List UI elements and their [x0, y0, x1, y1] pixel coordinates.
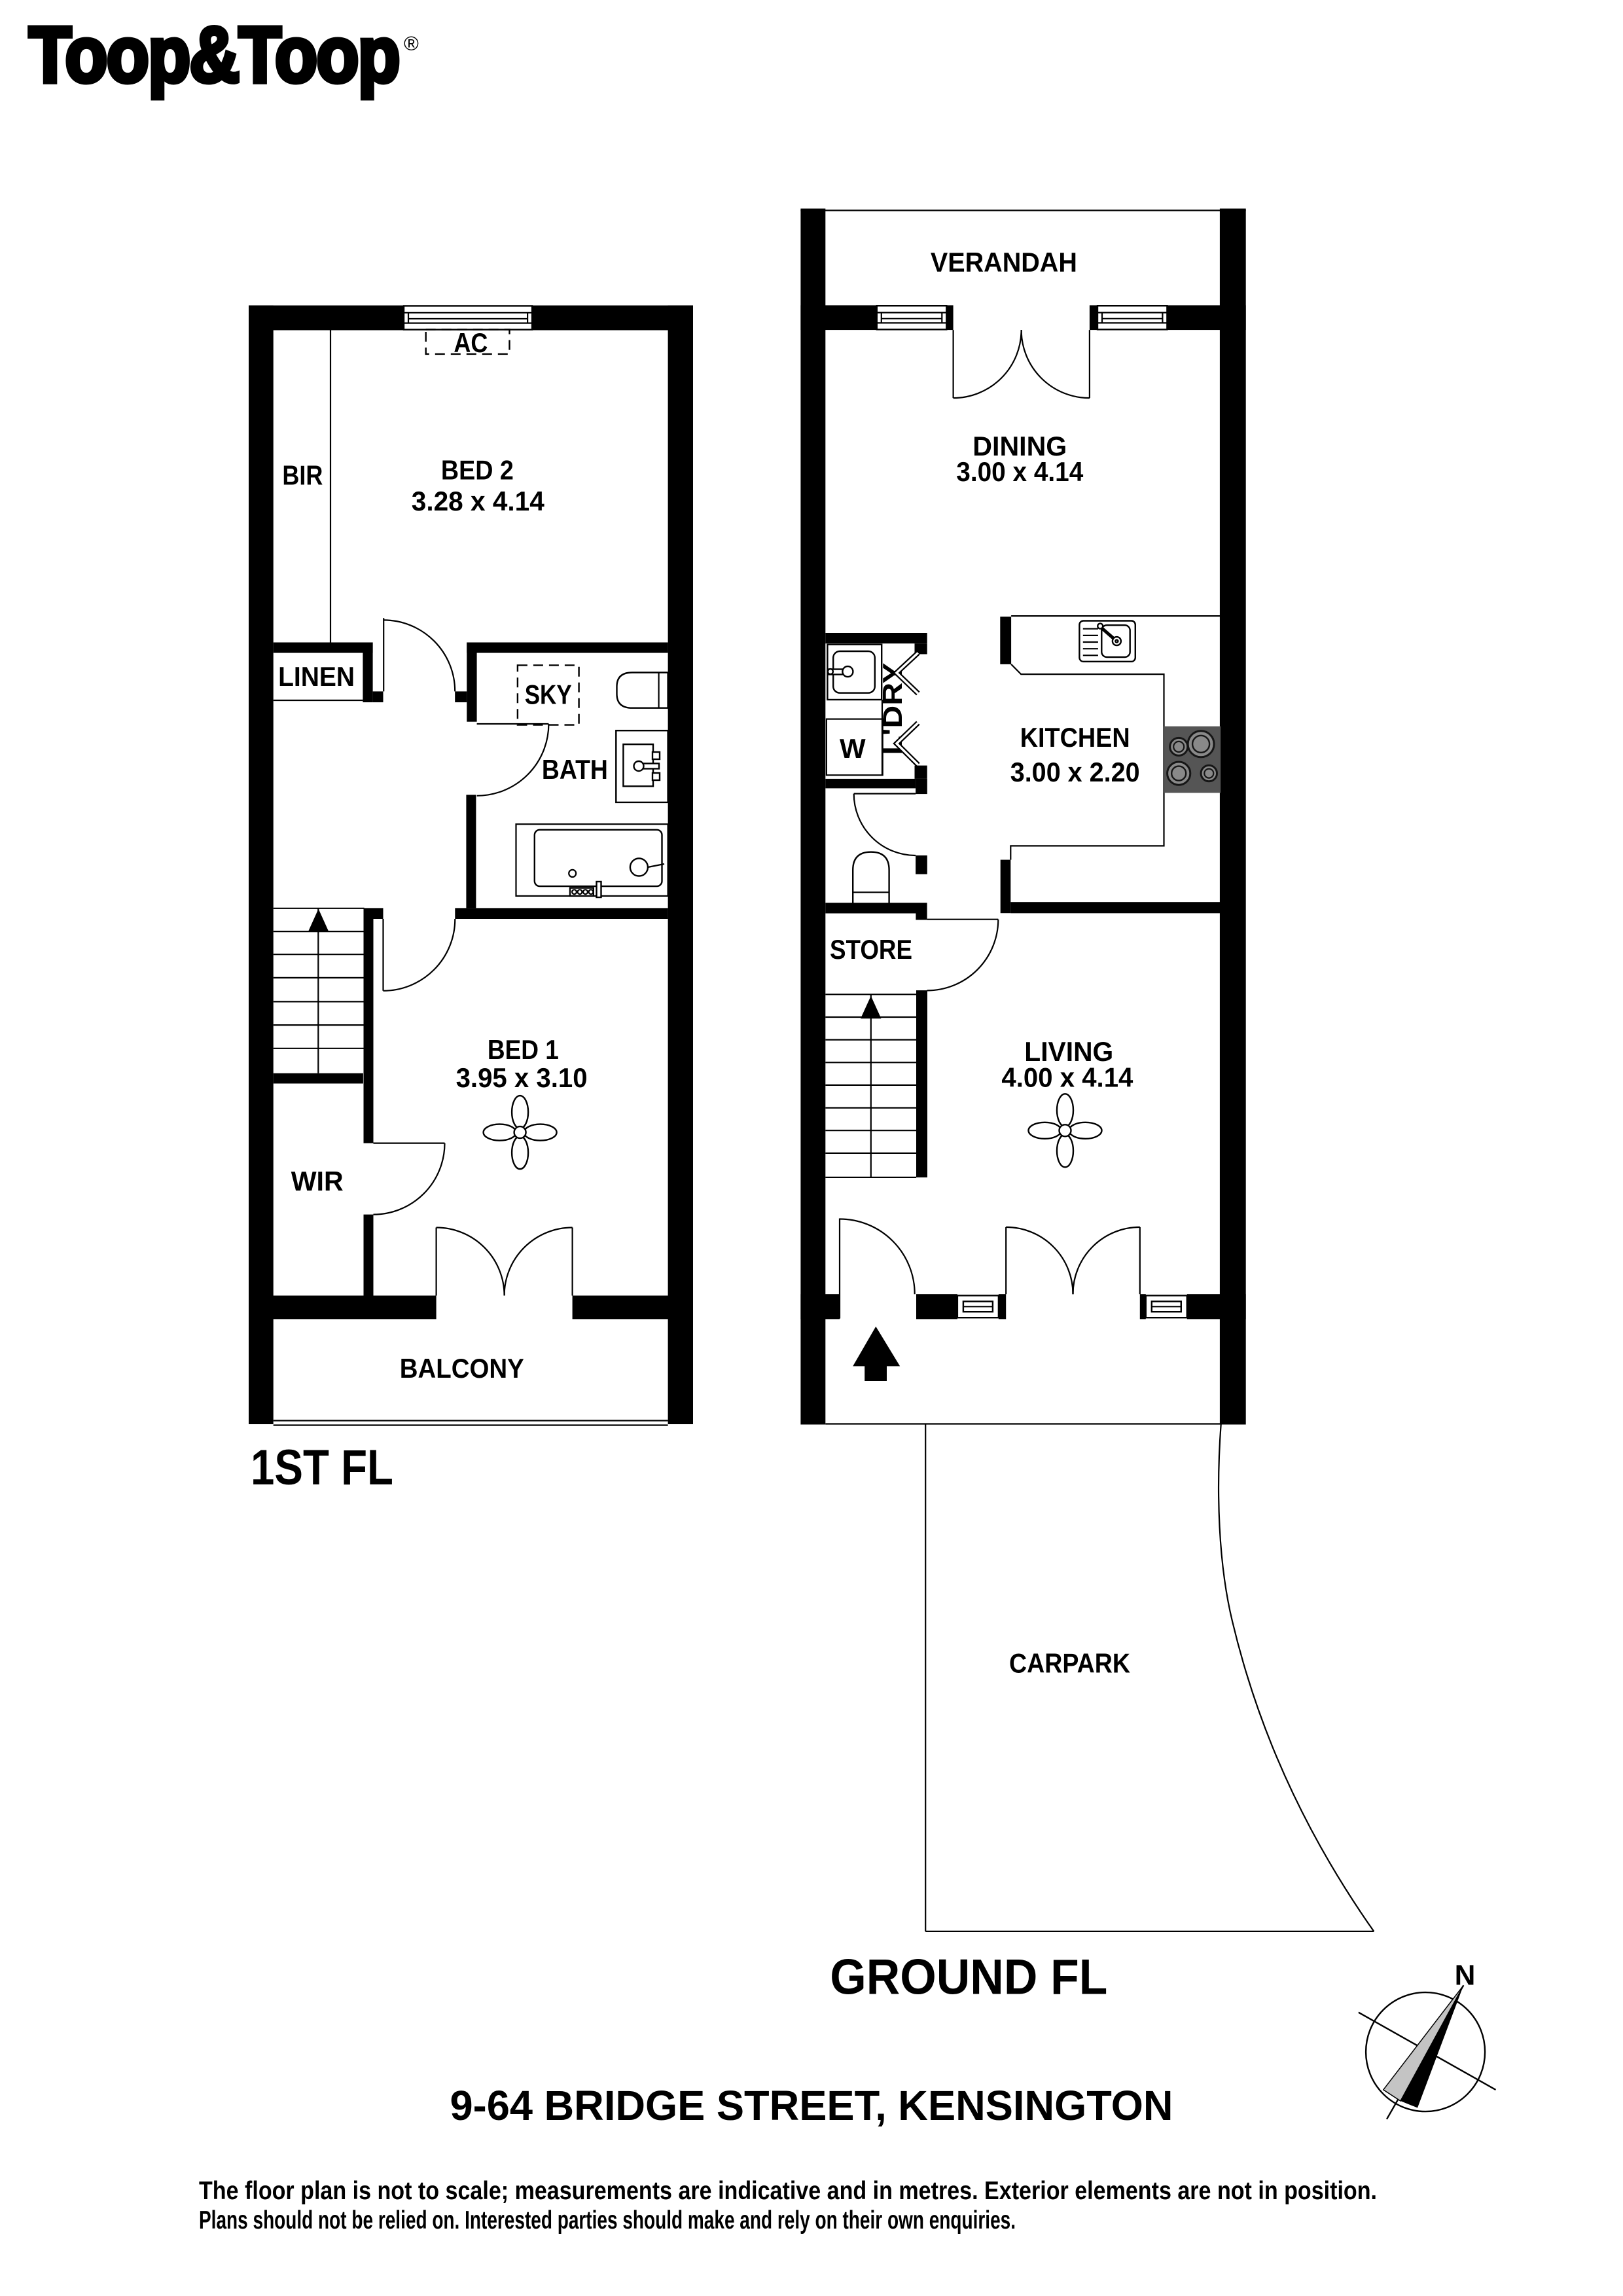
svg-text:3.00 x 2.20: 3.00 x 2.20 [1010, 757, 1140, 787]
svg-text:BIR: BIR [282, 460, 323, 491]
svg-text:®: ® [404, 32, 419, 55]
svg-text:The floor plan is not to scale: The floor plan is not to scale; measurem… [199, 2177, 1377, 2205]
svg-text:LINEN: LINEN [278, 661, 355, 692]
svg-text:GROUND FL: GROUND FL [830, 1949, 1107, 2005]
svg-text:4.00 x 4.14: 4.00 x 4.14 [1001, 1062, 1133, 1092]
svg-text:Plans should not be relied on.: Plans should not be relied on. Intereste… [199, 2206, 1016, 2234]
svg-text:AC: AC [454, 327, 488, 358]
svg-text:3.28 x 4.14: 3.28 x 4.14 [412, 486, 545, 516]
svg-text:1ST FL: 1ST FL [251, 1440, 393, 1496]
svg-text:BED 2: BED 2 [441, 455, 514, 486]
svg-text:STORE: STORE [830, 934, 912, 965]
svg-text:KITCHEN: KITCHEN [1020, 722, 1130, 753]
svg-text:VERANDAH: VERANDAH [931, 247, 1077, 278]
svg-text:3.00 x 4.14: 3.00 x 4.14 [956, 456, 1084, 487]
svg-text:9-64 BRIDGE STREET, KENSINGTON: 9-64 BRIDGE STREET, KENSINGTON [450, 2082, 1173, 2129]
svg-text:N: N [1455, 1960, 1476, 1992]
svg-text:Toop&Toop: Toop&Toop [29, 10, 399, 99]
svg-text:WIR: WIR [291, 1166, 344, 1196]
svg-text:BED 1: BED 1 [488, 1034, 559, 1065]
svg-text:3.95 x 3.10: 3.95 x 3.10 [456, 1062, 588, 1093]
svg-text:CARPARK: CARPARK [1009, 1647, 1130, 1678]
svg-text:W: W [840, 733, 866, 764]
svg-text:BALCONY: BALCONY [400, 1353, 524, 1384]
svg-text:SKY: SKY [525, 679, 572, 710]
svg-text:BATH: BATH [542, 754, 608, 785]
